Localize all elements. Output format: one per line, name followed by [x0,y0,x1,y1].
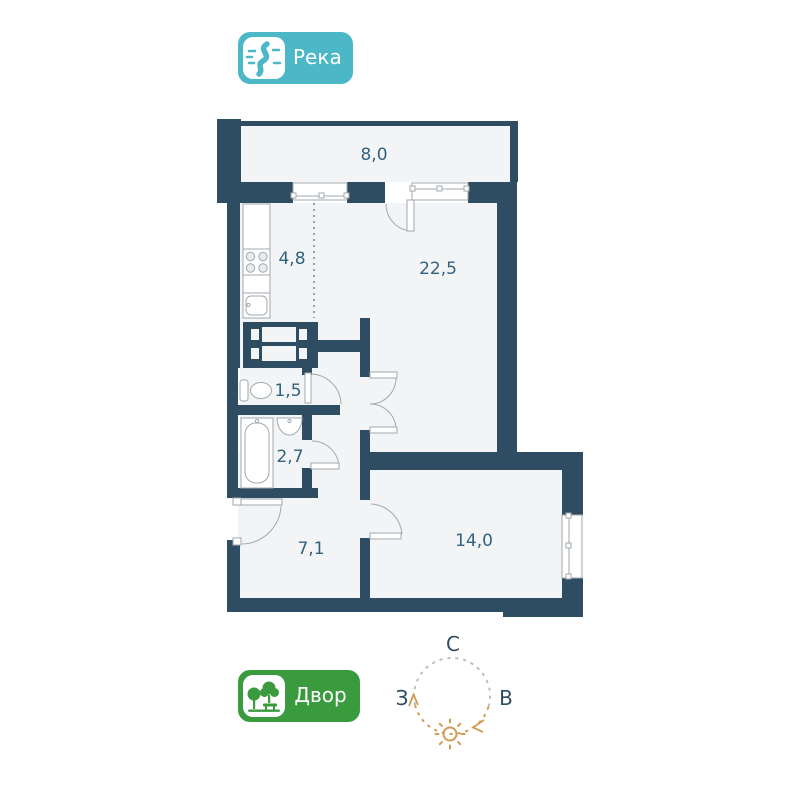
toilet-area-label: 1,5 [274,381,301,401]
bathroom-area-label: 2,7 [276,447,303,467]
compass-north-label: С [446,632,460,656]
compass-arrow-west [409,695,418,707]
lower-floor [238,452,568,598]
floor-plan-page: 8,0 4,8 22,5 1,5 2,7 7,1 14,0 С З В [0,0,800,800]
kitchen-area-label: 4,8 [278,249,305,269]
stove [243,249,270,275]
compass-circle-gray [414,658,490,706]
kitchen-window [291,183,349,200]
compass-west-label: З [396,686,409,710]
yard-badge-label: Двор [285,683,360,709]
bedroom-area-label: 14,0 [455,531,493,551]
bathtub [241,418,273,488]
bedroom-window [562,513,582,579]
compass-arrow-east [473,720,484,732]
river-icon [243,37,285,79]
compass-east-label: В [499,686,513,710]
living-room-window [410,183,469,200]
floor-plan: 8,0 4,8 22,5 1,5 2,7 7,1 14,0 С З В [0,0,800,800]
hallway-area-label: 7,1 [297,539,324,559]
living-room-area-label: 22,5 [419,259,457,279]
compass: С З В [396,632,513,749]
yard-icon [243,675,285,717]
balcony-area-label: 8,0 [360,145,387,165]
kitchen-sink [243,293,270,318]
river-badge-label: Река [285,45,354,71]
yard-badge: Двор [238,670,360,722]
river-badge: Река [238,32,353,84]
